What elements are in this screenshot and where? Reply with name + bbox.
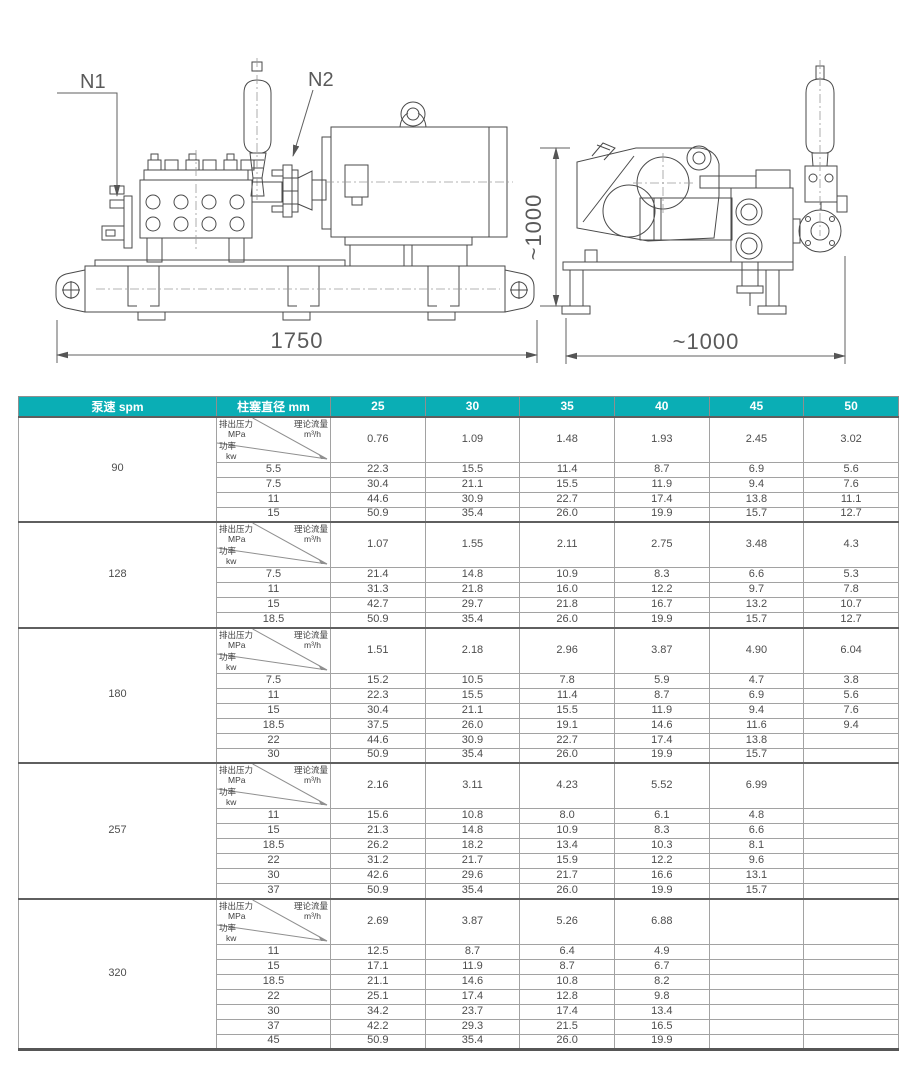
capacity-value: [804, 884, 899, 899]
capacity-value: 12.2: [614, 854, 709, 869]
capacity-value: 26.0: [425, 718, 520, 733]
callout-n2: N2: [293, 69, 334, 156]
capacity-value: 19.1: [520, 718, 615, 733]
power-kw-value: 7.5: [217, 673, 331, 688]
capacity-value: 14.8: [425, 568, 520, 583]
capacity-value: 16.7: [614, 598, 709, 613]
capacity-value: 21.1: [425, 477, 520, 492]
capacity-value: 34.2: [331, 1004, 426, 1019]
capacity-value: 7.6: [804, 477, 899, 492]
capacity-value: [804, 1019, 899, 1034]
spec-table-header-row: 泵速 spm柱塞直径 mm253035404550: [19, 397, 899, 417]
capacity-value: 30.9: [425, 733, 520, 748]
capacity-value: 15.2: [331, 673, 426, 688]
capacity-value: 37.5: [331, 718, 426, 733]
capacity-value: 7.8: [520, 673, 615, 688]
capacity-value: 22.3: [331, 688, 426, 703]
diagonal-split: 排出压力MPa理论流量m³/h功率kw: [217, 523, 330, 567]
technical-drawing: N1 N2 1750 ~1000: [0, 0, 900, 392]
matrix-header-cell: 排出压力MPa理论流量m³/h功率kw: [217, 417, 331, 463]
theoretical-flow-value: 6.04: [804, 628, 899, 674]
label-power: 功率: [219, 653, 236, 662]
theoretical-flow-value: [709, 899, 804, 945]
label-discharge-pressure: 排出压力: [219, 525, 253, 534]
capacity-value: 31.2: [331, 854, 426, 869]
capacity-value: 14.8: [425, 824, 520, 839]
side-view: N1 N2 1750 ~1000: [56, 58, 570, 363]
capacity-value: 8.3: [614, 568, 709, 583]
power-kw-value: 7.5: [217, 477, 331, 492]
capacity-value: 21.5: [520, 1019, 615, 1034]
capacity-value: 11.4: [520, 462, 615, 477]
theoretical-flow-value: 2.16: [331, 763, 426, 809]
section-flow-row: 90排出压力MPa理论流量m³/h功率kw0.761.091.481.932.4…: [19, 417, 899, 463]
label-mpa-unit: MPa: [228, 641, 245, 650]
capacity-value: 5.6: [804, 462, 899, 477]
capacity-value: 21.7: [520, 869, 615, 884]
capacity-value: 26.2: [331, 839, 426, 854]
capacity-value: 15.9: [520, 854, 615, 869]
capacity-value: 16.5: [614, 1019, 709, 1034]
power-kw-value: 18.5: [217, 839, 331, 854]
capacity-value: 22.3: [331, 462, 426, 477]
dimension-height: ~1000: [521, 148, 570, 306]
n1-leader-line: [57, 93, 117, 196]
theoretical-flow-value: 3.87: [425, 899, 520, 945]
label-mpa-unit: MPa: [228, 776, 245, 785]
capacity-value: 6.4: [520, 944, 615, 959]
capacity-value: [804, 944, 899, 959]
label-discharge-pressure: 排出压力: [219, 902, 253, 911]
label-m3h-unit: m³/h: [304, 535, 321, 544]
capacity-value: [804, 974, 899, 989]
capacity-value: 31.3: [331, 583, 426, 598]
capacity-value: [709, 989, 804, 1004]
label-kw-unit: kw: [226, 452, 236, 461]
capacity-value: [804, 854, 899, 869]
power-kw-value: 37: [217, 1019, 331, 1034]
capacity-value: 8.7: [520, 959, 615, 974]
capacity-value: 11.9: [614, 477, 709, 492]
label-power: 功率: [219, 924, 236, 933]
theoretical-flow-value: 1.55: [425, 522, 520, 568]
capacity-value: 26.0: [520, 884, 615, 899]
capacity-value: [709, 944, 804, 959]
capacity-value: 11.9: [614, 703, 709, 718]
capacity-value: 50.9: [331, 884, 426, 899]
label-kw-unit: kw: [226, 663, 236, 672]
theoretical-flow-value: 1.09: [425, 417, 520, 463]
label-power: 功率: [219, 788, 236, 797]
dim-1750-label: 1750: [271, 328, 324, 353]
diagonal-split: 排出压力MPa理论流量m³/h功率kw: [217, 629, 330, 673]
theoretical-flow-value: 6.99: [709, 763, 804, 809]
capacity-value: 8.0: [520, 809, 615, 824]
capacity-value: 11.1: [804, 492, 899, 507]
capacity-value: 11.6: [709, 718, 804, 733]
capacity-value: 12.7: [804, 613, 899, 628]
section-flow-row: 257排出压力MPa理论流量m³/h功率kw2.163.114.235.526.…: [19, 763, 899, 809]
theoretical-flow-value: 3.48: [709, 522, 804, 568]
label-kw-unit: kw: [226, 934, 236, 943]
theoretical-flow-value: 1.48: [520, 417, 615, 463]
label-m3h-unit: m³/h: [304, 430, 321, 439]
pump-speed-value: 320: [19, 899, 217, 1050]
capacity-value: 50.9: [331, 613, 426, 628]
capacity-value: 42.6: [331, 869, 426, 884]
column-header-diameter-35: 35: [520, 397, 615, 417]
power-kw-value: 37: [217, 884, 331, 899]
power-kw-value: 18.5: [217, 974, 331, 989]
capacity-value: 18.2: [425, 839, 520, 854]
label-power: 功率: [219, 547, 236, 556]
discharge-flange-face: [793, 210, 841, 252]
power-kw-value: 11: [217, 809, 331, 824]
capacity-value: 8.3: [614, 824, 709, 839]
capacity-value: 35.4: [425, 613, 520, 628]
power-kw-value: 11: [217, 583, 331, 598]
theoretical-flow-value: 1.51: [331, 628, 426, 674]
theoretical-flow-value: 4.3: [804, 522, 899, 568]
n2-leader-line: [293, 90, 313, 156]
capacity-value: 22.7: [520, 492, 615, 507]
capacity-value: 13.1: [709, 869, 804, 884]
label-theoretical-flow: 理论流量: [294, 420, 328, 429]
capacity-value: 11.4: [520, 688, 615, 703]
capacity-value: 9.6: [709, 854, 804, 869]
power-kw-value: 15: [217, 959, 331, 974]
theoretical-flow-value: 3.11: [425, 763, 520, 809]
power-kw-value: 15: [217, 598, 331, 613]
capacity-value: 42.7: [331, 598, 426, 613]
capacity-value: 26.0: [520, 507, 615, 522]
capacity-value: [709, 1034, 804, 1049]
capacity-value: 26.0: [520, 1034, 615, 1049]
capacity-value: [804, 1034, 899, 1049]
label-m3h-unit: m³/h: [304, 776, 321, 785]
power-kw-value: 18.5: [217, 613, 331, 628]
theoretical-flow-value: 1.07: [331, 522, 426, 568]
capacity-value: 15.5: [520, 477, 615, 492]
fluid-end-block: [731, 188, 793, 306]
capacity-value: 9.4: [709, 477, 804, 492]
capacity-value: 17.4: [614, 733, 709, 748]
power-kw-value: 22: [217, 733, 331, 748]
theoretical-flow-value: 5.52: [614, 763, 709, 809]
capacity-value: 5.9: [614, 673, 709, 688]
capacity-value: 15.5: [520, 703, 615, 718]
capacity-value: 13.4: [614, 1004, 709, 1019]
capacity-value: 15.7: [709, 613, 804, 628]
capacity-value: [709, 974, 804, 989]
capacity-value: 13.8: [709, 492, 804, 507]
label-m3h-unit: m³/h: [304, 641, 321, 650]
power-kw-value: 15: [217, 507, 331, 522]
power-kw-value: 15: [217, 703, 331, 718]
section-flow-row: 128排出压力MPa理论流量m³/h功率kw1.071.552.112.753.…: [19, 522, 899, 568]
motor: [322, 102, 507, 266]
capacity-value: 8.7: [614, 462, 709, 477]
theoretical-flow-value: 2.75: [614, 522, 709, 568]
capacity-value: 6.6: [709, 824, 804, 839]
capacity-value: 5.6: [804, 688, 899, 703]
capacity-value: 42.2: [331, 1019, 426, 1034]
capacity-value: 7.6: [804, 703, 899, 718]
capacity-value: 19.9: [614, 884, 709, 899]
crankcase-end: [577, 143, 719, 241]
label-kw-unit: kw: [226, 557, 236, 566]
capacity-value: 21.1: [331, 974, 426, 989]
power-kw-value: 11: [217, 944, 331, 959]
pump-drawing-svg: N1 N2 1750 ~1000: [0, 0, 900, 392]
capacity-value: [804, 733, 899, 748]
capacity-value: 6.6: [709, 568, 804, 583]
capacity-value: 8.7: [614, 688, 709, 703]
capacity-value: 7.8: [804, 583, 899, 598]
capacity-value: 9.4: [804, 718, 899, 733]
capacity-value: 17.4: [614, 492, 709, 507]
capacity-value: 10.3: [614, 839, 709, 854]
capacity-value: 4.9: [614, 944, 709, 959]
capacity-value: 6.1: [614, 809, 709, 824]
label-power: 功率: [219, 442, 236, 451]
capacity-value: 16.0: [520, 583, 615, 598]
capacity-value: 12.7: [804, 507, 899, 522]
accumulator-end: [805, 66, 847, 212]
capacity-value: 44.6: [331, 492, 426, 507]
theoretical-flow-value: 6.88: [614, 899, 709, 945]
capacity-value: 17.1: [331, 959, 426, 974]
capacity-value: 6.9: [709, 688, 804, 703]
theoretical-flow-value: 4.23: [520, 763, 615, 809]
theoretical-flow-value: 1.93: [614, 417, 709, 463]
capacity-value: 15.7: [709, 884, 804, 899]
capacity-value: 6.9: [709, 462, 804, 477]
capacity-value: 11.9: [425, 959, 520, 974]
pump-fluid-end: [140, 154, 254, 262]
dim-height-label: ~1000: [521, 194, 546, 261]
capacity-value: 19.9: [614, 748, 709, 763]
theoretical-flow-value: 2.18: [425, 628, 520, 674]
capacity-value: [804, 824, 899, 839]
capacity-value: 16.6: [614, 869, 709, 884]
dimension-width: ~1000: [566, 256, 845, 364]
capacity-value: 21.3: [331, 824, 426, 839]
skid-base: [56, 260, 534, 320]
capacity-value: 14.6: [425, 974, 520, 989]
end-view: ~1000: [562, 60, 847, 364]
pump-speed-value: 90: [19, 417, 217, 523]
capacity-value: 26.0: [520, 748, 615, 763]
capacity-value: [804, 809, 899, 824]
capacity-value: 30.4: [331, 477, 426, 492]
theoretical-flow-value: 2.69: [331, 899, 426, 945]
capacity-value: 6.7: [614, 959, 709, 974]
theoretical-flow-value: [804, 899, 899, 945]
capacity-value: 15.7: [709, 507, 804, 522]
theoretical-flow-value: 5.26: [520, 899, 615, 945]
capacity-value: [804, 959, 899, 974]
capacity-value: 15.6: [331, 809, 426, 824]
theoretical-flow-value: 3.02: [804, 417, 899, 463]
capacity-value: 12.2: [614, 583, 709, 598]
theoretical-flow-value: 2.45: [709, 417, 804, 463]
theoretical-flow-value: [804, 763, 899, 809]
capacity-value: 9.8: [614, 989, 709, 1004]
capacity-value: [709, 959, 804, 974]
capacity-value: 21.1: [425, 703, 520, 718]
capacity-value: 50.9: [331, 1034, 426, 1049]
capacity-value: 10.8: [425, 809, 520, 824]
section-flow-row: 320排出压力MPa理论流量m³/h功率kw2.693.875.266.88: [19, 899, 899, 945]
label-m3h-unit: m³/h: [304, 912, 321, 921]
capacity-value: 35.4: [425, 507, 520, 522]
spec-table-body: 90排出压力MPa理论流量m³/h功率kw0.761.091.481.932.4…: [19, 417, 899, 1050]
capacity-value: 44.6: [331, 733, 426, 748]
capacity-value: 9.7: [709, 583, 804, 598]
capacity-value: 15.7: [709, 748, 804, 763]
column-header-diameter-30: 30: [425, 397, 520, 417]
matrix-header-cell: 排出压力MPa理论流量m³/h功率kw: [217, 899, 331, 945]
pump-speed-value: 128: [19, 522, 217, 628]
power-kw-value: 5.5: [217, 462, 331, 477]
capacity-value: 10.9: [520, 824, 615, 839]
label-theoretical-flow: 理论流量: [294, 525, 328, 534]
capacity-value: 50.9: [331, 507, 426, 522]
power-kw-value: 30: [217, 869, 331, 884]
capacity-value: 35.4: [425, 1034, 520, 1049]
theoretical-flow-value: 2.96: [520, 628, 615, 674]
capacity-value: 5.3: [804, 568, 899, 583]
capacity-value: 19.9: [614, 613, 709, 628]
power-kw-value: 11: [217, 688, 331, 703]
callout-n1: N1: [57, 71, 117, 196]
capacity-value: [709, 1004, 804, 1019]
capacity-value: 29.3: [425, 1019, 520, 1034]
matrix-header-cell: 排出压力MPa理论流量m³/h功率kw: [217, 628, 331, 674]
capacity-value: 50.9: [331, 748, 426, 763]
capacity-value: 9.4: [709, 703, 804, 718]
capacity-value: 21.8: [520, 598, 615, 613]
capacity-value: 19.9: [614, 507, 709, 522]
capacity-value: 15.5: [425, 462, 520, 477]
capacity-value: 13.2: [709, 598, 804, 613]
label-n2: N2: [308, 69, 334, 91]
diagonal-split: 排出压力MPa理论流量m³/h功率kw: [217, 764, 330, 808]
dimension-length: 1750: [57, 320, 537, 363]
capacity-value: 29.7: [425, 598, 520, 613]
label-n1: N1: [80, 71, 106, 93]
capacity-value: 8.1: [709, 839, 804, 854]
label-mpa-unit: MPa: [228, 912, 245, 921]
column-header-diameter-25: 25: [331, 397, 426, 417]
spec-table: 泵速 spm柱塞直径 mm253035404550 90排出压力MPa理论流量m…: [18, 396, 899, 1051]
capacity-value: 3.8: [804, 673, 899, 688]
capacity-value: 10.5: [425, 673, 520, 688]
label-discharge-pressure: 排出压力: [219, 631, 253, 640]
capacity-value: [804, 989, 899, 1004]
capacity-value: [804, 748, 899, 763]
label-theoretical-flow: 理论流量: [294, 902, 328, 911]
theoretical-flow-value: 3.87: [614, 628, 709, 674]
capacity-value: 26.0: [520, 613, 615, 628]
capacity-value: 17.4: [520, 1004, 615, 1019]
pump-datasheet-page: { "drawing": { "labels": { "n1": "N1", "…: [0, 0, 900, 1077]
matrix-header-cell: 排出压力MPa理论流量m³/h功率kw: [217, 522, 331, 568]
label-discharge-pressure: 排出压力: [219, 766, 253, 775]
capacity-value: 10.9: [520, 568, 615, 583]
pump-speed-value: 180: [19, 628, 217, 764]
capacity-value: 12.8: [520, 989, 615, 1004]
power-kw-value: 45: [217, 1034, 331, 1049]
column-header-diameter-50: 50: [804, 397, 899, 417]
capacity-value: 21.8: [425, 583, 520, 598]
diagonal-split: 排出压力MPa理论流量m³/h功率kw: [217, 418, 330, 462]
capacity-value: 19.9: [614, 1034, 709, 1049]
capacity-value: 8.7: [425, 944, 520, 959]
power-kw-value: 15: [217, 824, 331, 839]
capacity-value: 13.8: [709, 733, 804, 748]
capacity-value: 10.8: [520, 974, 615, 989]
capacity-value: 4.8: [709, 809, 804, 824]
dim-width-label: ~1000: [673, 329, 740, 354]
capacity-value: [804, 869, 899, 884]
power-kw-value: 11: [217, 492, 331, 507]
capacity-value: 25.1: [331, 989, 426, 1004]
theoretical-flow-value: 4.90: [709, 628, 804, 674]
power-kw-value: 22: [217, 989, 331, 1004]
capacity-value: 4.7: [709, 673, 804, 688]
capacity-value: 35.4: [425, 884, 520, 899]
power-kw-value: 7.5: [217, 568, 331, 583]
capacity-value: 22.7: [520, 733, 615, 748]
capacity-value: 30.9: [425, 492, 520, 507]
capacity-value: [804, 839, 899, 854]
column-header-plunger-diameter: 柱塞直径 mm: [217, 397, 331, 417]
column-header-pump-speed: 泵速 spm: [19, 397, 217, 417]
capacity-value: 13.4: [520, 839, 615, 854]
label-discharge-pressure: 排出压力: [219, 420, 253, 429]
capacity-value: 23.7: [425, 1004, 520, 1019]
capacity-value: 30.4: [331, 703, 426, 718]
section-flow-row: 180排出压力MPa理论流量m³/h功率kw1.512.182.963.874.…: [19, 628, 899, 674]
capacity-value: 12.5: [331, 944, 426, 959]
power-kw-value: 22: [217, 854, 331, 869]
column-header-diameter-40: 40: [614, 397, 709, 417]
pump-speed-value: 257: [19, 763, 217, 899]
capacity-value: [804, 1004, 899, 1019]
column-header-diameter-45: 45: [709, 397, 804, 417]
theoretical-flow-value: 2.11: [520, 522, 615, 568]
capacity-value: 10.7: [804, 598, 899, 613]
capacity-value: [709, 1019, 804, 1034]
label-mpa-unit: MPa: [228, 430, 245, 439]
label-mpa-unit: MPa: [228, 535, 245, 544]
capacity-value: 21.4: [331, 568, 426, 583]
matrix-header-cell: 排出压力MPa理论流量m³/h功率kw: [217, 763, 331, 809]
label-theoretical-flow: 理论流量: [294, 631, 328, 640]
capacity-value: 15.5: [425, 688, 520, 703]
power-kw-value: 18.5: [217, 718, 331, 733]
capacity-value: 35.4: [425, 748, 520, 763]
power-kw-value: 30: [217, 1004, 331, 1019]
diagonal-split: 排出压力MPa理论流量m³/h功率kw: [217, 900, 330, 944]
capacity-value: 14.6: [614, 718, 709, 733]
label-kw-unit: kw: [226, 798, 236, 807]
spec-table-head: 泵速 spm柱塞直径 mm253035404550: [19, 397, 899, 417]
power-kw-value: 30: [217, 748, 331, 763]
label-theoretical-flow: 理论流量: [294, 766, 328, 775]
